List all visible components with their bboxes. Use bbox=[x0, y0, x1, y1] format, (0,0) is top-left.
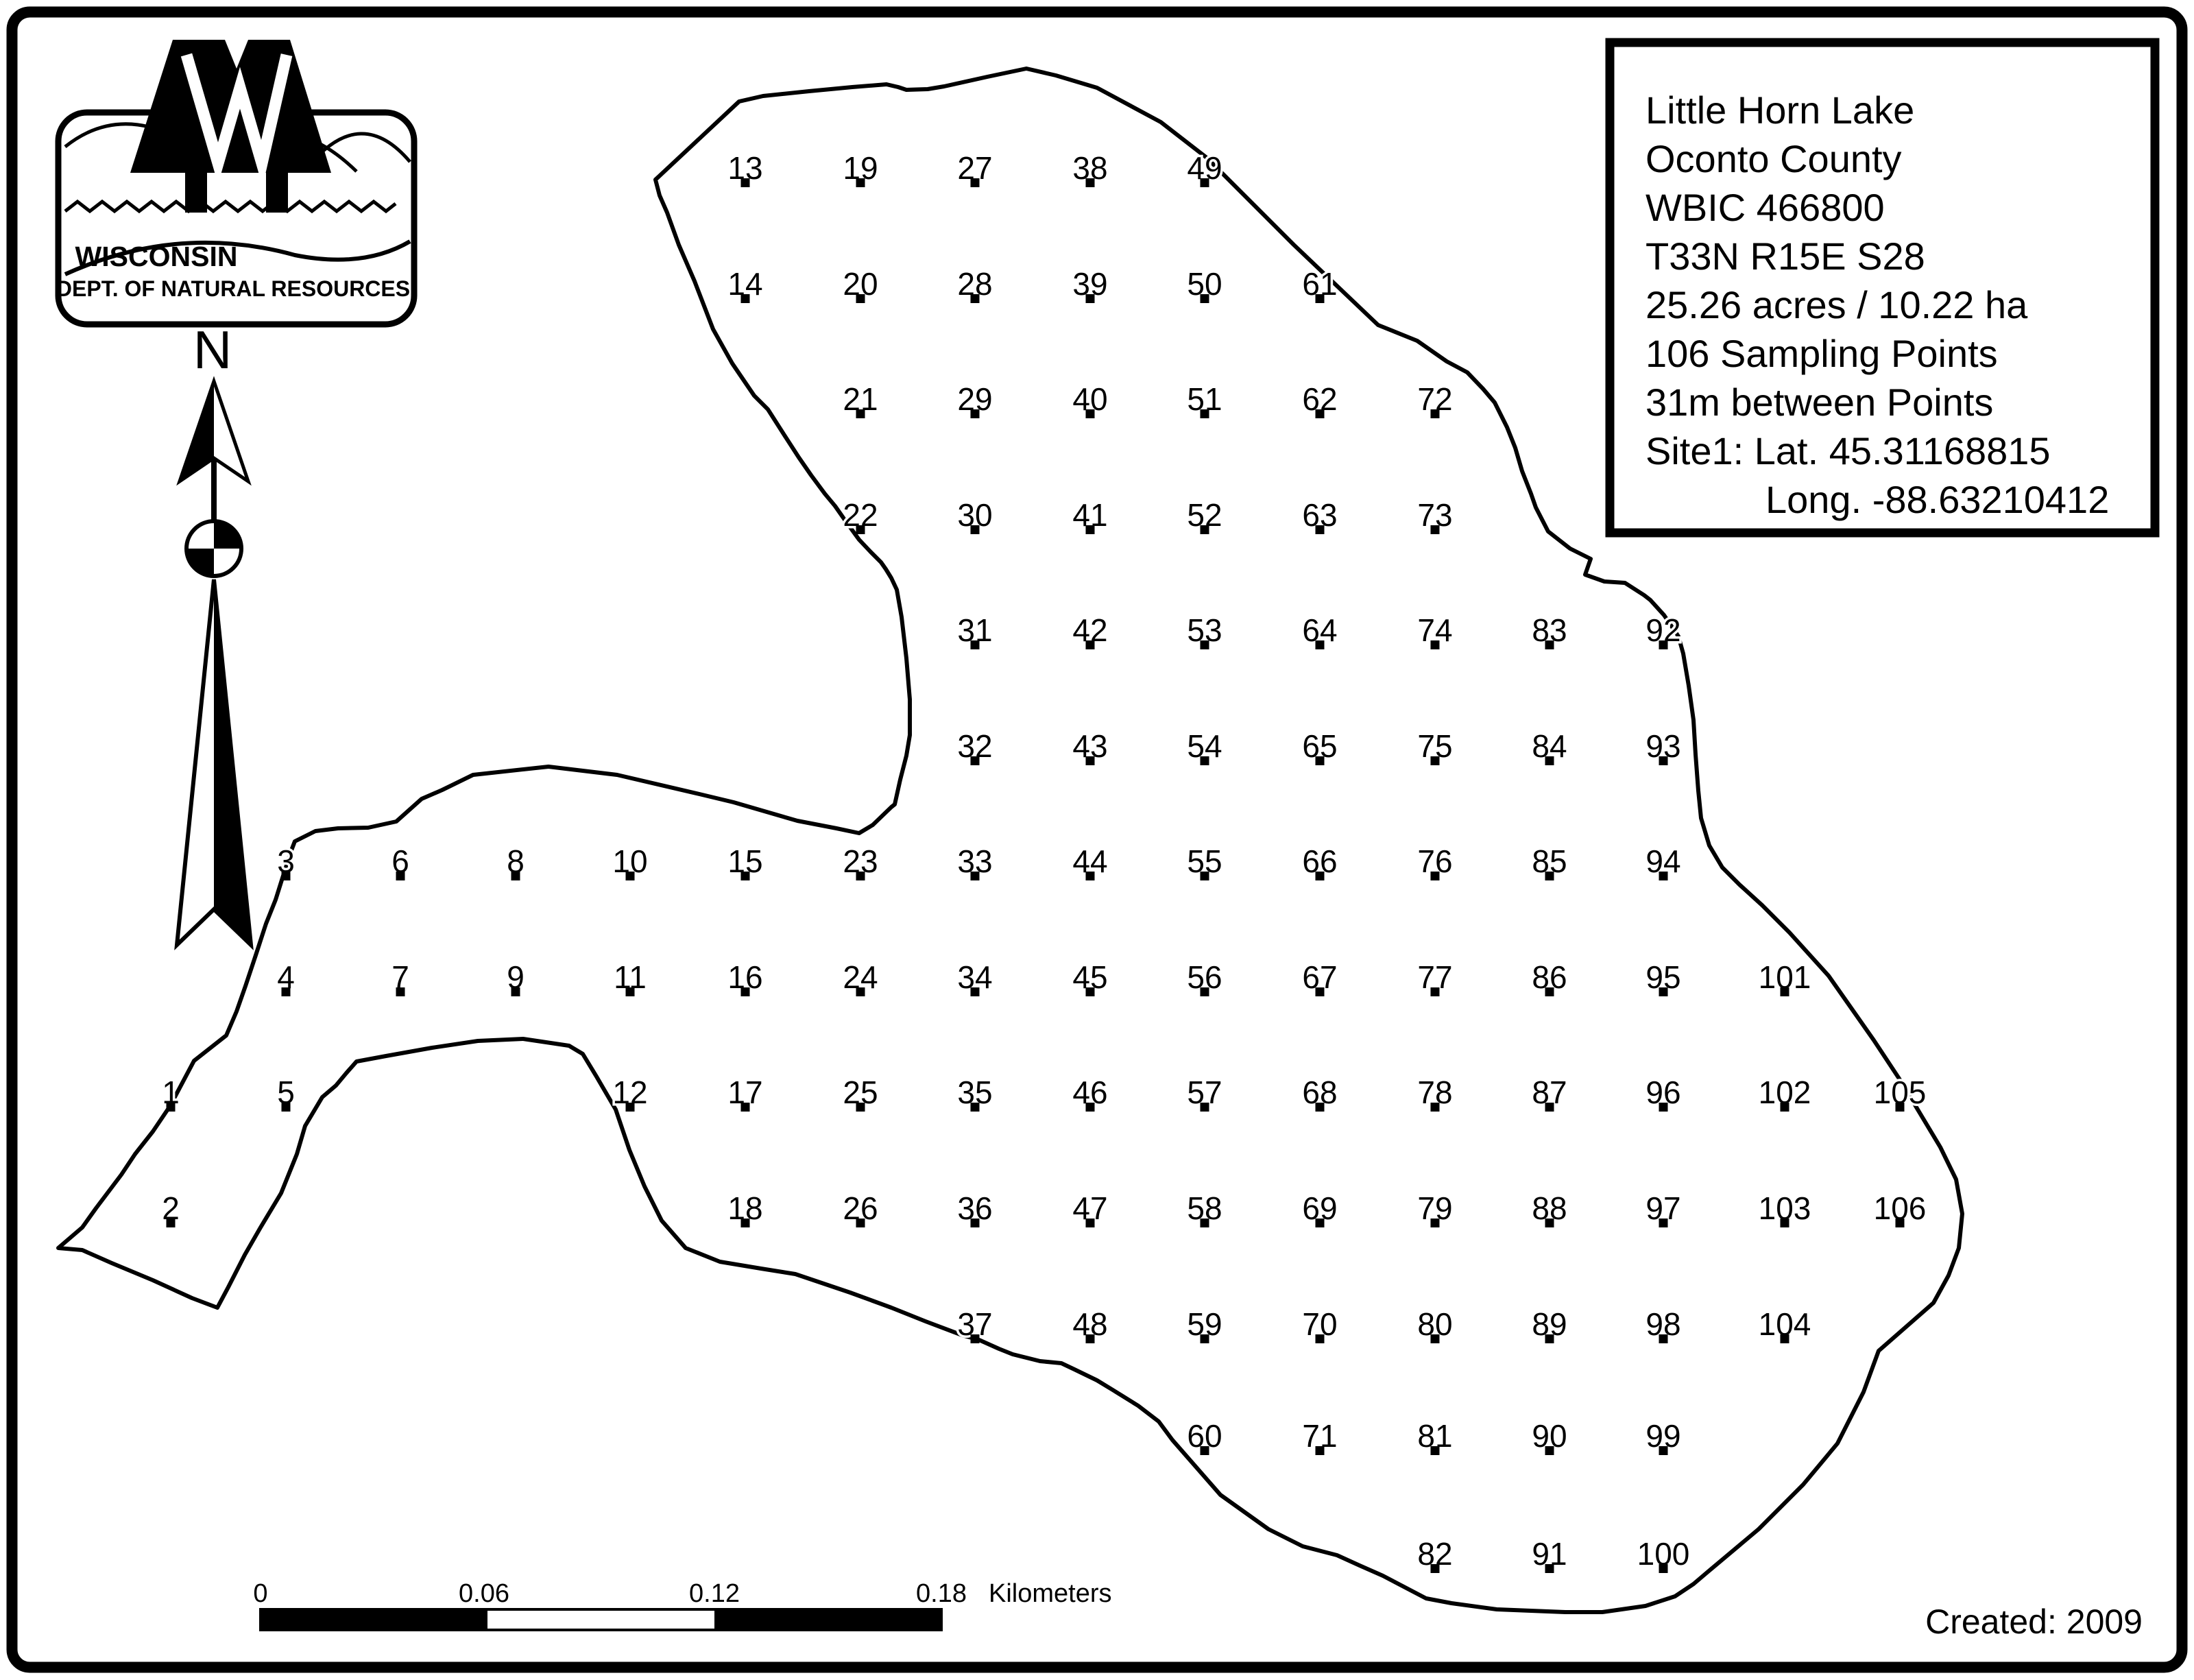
sample-point-dot bbox=[1659, 756, 1668, 765]
sample-point-dot bbox=[856, 1103, 865, 1112]
scale-bar: 00.060.120.18 Kilometers bbox=[253, 1579, 1111, 1630]
sample-point-dot bbox=[741, 1219, 750, 1227]
sample-point-dot bbox=[1086, 640, 1095, 649]
sample-point-dot bbox=[1781, 1219, 1789, 1227]
info-box-line: T33N R15E S28 bbox=[1645, 235, 1925, 278]
sample-point-dot bbox=[626, 872, 635, 880]
sample-point-dot bbox=[971, 525, 980, 534]
north-arrow: N bbox=[177, 320, 251, 945]
sample-point-dot bbox=[971, 409, 980, 418]
sample-point-dot bbox=[1545, 1219, 1554, 1227]
sample-point-dot bbox=[856, 525, 865, 534]
sample-point-dot bbox=[1316, 1219, 1325, 1227]
info-box-line: Oconto County bbox=[1645, 137, 1902, 180]
sample-point-dot bbox=[1545, 640, 1554, 649]
info-box-line: WBIC 466800 bbox=[1645, 186, 1885, 229]
sample-point-dot bbox=[741, 1103, 750, 1112]
sample-point-dot bbox=[1201, 1334, 1209, 1343]
sample-point-dot bbox=[1659, 640, 1668, 649]
info-box-line: 25.26 acres / 10.22 ha bbox=[1645, 283, 2028, 326]
sample-point-dot bbox=[741, 987, 750, 996]
sample-point-dot bbox=[1086, 294, 1095, 303]
sample-point-dot bbox=[1781, 1334, 1789, 1343]
sample-point-dot bbox=[1545, 756, 1554, 765]
sample-point-dot bbox=[1201, 1219, 1209, 1227]
sample-point-dot bbox=[971, 987, 980, 996]
sample-point-dot bbox=[971, 1103, 980, 1112]
sample-point-dot bbox=[741, 178, 750, 187]
sample-point-dot bbox=[1431, 1334, 1440, 1343]
scale-tick-labels: 00.060.120.18 bbox=[253, 1579, 967, 1608]
scale-unit-label: Kilometers bbox=[989, 1579, 1112, 1608]
sample-point-dot bbox=[1431, 525, 1440, 534]
sample-point-dot bbox=[971, 178, 980, 187]
sample-point-dot bbox=[1086, 987, 1095, 996]
sample-point-dot bbox=[1659, 1334, 1668, 1343]
sample-point-dot bbox=[1431, 1564, 1440, 1573]
sample-point-dot bbox=[1659, 1564, 1668, 1573]
info-box-line: 31m between Points bbox=[1645, 381, 1993, 424]
sample-point-dot bbox=[1781, 987, 1789, 996]
sample-point-dot bbox=[626, 987, 635, 996]
sample-point-dot bbox=[1896, 1219, 1905, 1227]
sample-point-dot bbox=[1316, 1446, 1325, 1455]
sample-point-dot bbox=[1086, 756, 1095, 765]
sample-point-dot bbox=[1086, 872, 1095, 880]
scale-bar-segment-3 bbox=[714, 1609, 941, 1630]
sample-point-dot bbox=[1316, 1103, 1325, 1112]
sample-point-dot bbox=[1431, 409, 1440, 418]
map-canvas: 1234567891011121314151617181920212223242… bbox=[0, 0, 2194, 1680]
sample-point-dot bbox=[1431, 640, 1440, 649]
sample-point-dot bbox=[1431, 872, 1440, 880]
scale-tick-label: 0.18 bbox=[916, 1579, 967, 1608]
sample-point-dot bbox=[1431, 987, 1440, 996]
sample-point-dot bbox=[971, 872, 980, 880]
sample-point-dot bbox=[1316, 640, 1325, 649]
sample-point-dot bbox=[1659, 872, 1668, 880]
scale-tick-label: 0.12 bbox=[689, 1579, 740, 1608]
sample-point-dot bbox=[1545, 987, 1554, 996]
sample-point-dot bbox=[1316, 987, 1325, 996]
sample-point-dot bbox=[1086, 409, 1095, 418]
logo-org-line1: WISCONSIN bbox=[75, 241, 238, 272]
sample-point-dot bbox=[856, 1219, 865, 1227]
sample-point-dot bbox=[971, 1219, 980, 1227]
sample-point-dot bbox=[396, 872, 405, 880]
sample-point-dot bbox=[1659, 1103, 1668, 1112]
sample-point-dot bbox=[282, 1103, 291, 1112]
sample-point-dot bbox=[1201, 178, 1209, 187]
dnr-logo: WISCONSIN DEPT. OF NATURAL RESOURCES bbox=[56, 40, 414, 324]
sample-point-dot bbox=[1316, 294, 1325, 303]
info-box-line: Long. -88.63210412 bbox=[1765, 478, 2109, 521]
sample-point-dot bbox=[511, 872, 520, 880]
sample-point-dot bbox=[167, 1219, 176, 1227]
sample-point-dot bbox=[1431, 1103, 1440, 1112]
info-box-line: Site1: Lat. 45.31168815 bbox=[1645, 429, 2051, 472]
sample-point-dot bbox=[1201, 409, 1209, 418]
sample-point-dot bbox=[1659, 1446, 1668, 1455]
hub-quadrant-ne-icon bbox=[214, 521, 241, 549]
sample-point-dot bbox=[1316, 756, 1325, 765]
sample-point-dot bbox=[971, 1334, 980, 1343]
sample-point-dot bbox=[1201, 294, 1209, 303]
scale-tick-label: 0.06 bbox=[459, 1579, 509, 1608]
sample-point-dot bbox=[1201, 1103, 1209, 1112]
sample-point-dot bbox=[1086, 1334, 1095, 1343]
sample-point-dot bbox=[1545, 872, 1554, 880]
scale-tick-label: 0 bbox=[253, 1579, 267, 1608]
sample-point-dot bbox=[511, 987, 520, 996]
sample-point-dot bbox=[741, 872, 750, 880]
sample-point-dot bbox=[1659, 987, 1668, 996]
sample-point-dot bbox=[1086, 1219, 1095, 1227]
north-label: N bbox=[193, 320, 232, 380]
sample-point-dot bbox=[971, 640, 980, 649]
info-box-line: 106 Sampling Points bbox=[1645, 332, 1998, 375]
sample-point-dot bbox=[856, 409, 865, 418]
sample-point-dot bbox=[1316, 409, 1325, 418]
sample-point-dot bbox=[856, 294, 865, 303]
sample-point-dot bbox=[741, 294, 750, 303]
sample-point-dot bbox=[1545, 1334, 1554, 1343]
hub-quadrant-sw-icon bbox=[186, 549, 214, 576]
sample-point-dot bbox=[1781, 1103, 1789, 1112]
sample-point-dot bbox=[1545, 1446, 1554, 1455]
sample-point-dot bbox=[1086, 1103, 1095, 1112]
sample-point-dot bbox=[167, 1103, 176, 1112]
sample-point-dot bbox=[1316, 525, 1325, 534]
scale-bar-segment-1 bbox=[261, 1609, 487, 1630]
sample-point-dot bbox=[282, 872, 291, 880]
sample-point-dot bbox=[1201, 525, 1209, 534]
sample-point-dot bbox=[1545, 1103, 1554, 1112]
sample-point-dot bbox=[1316, 1334, 1325, 1343]
sample-point-dot bbox=[856, 178, 865, 187]
sample-point-dot bbox=[1431, 756, 1440, 765]
logo-org-line2: DEPT. OF NATURAL RESOURCES bbox=[56, 276, 410, 301]
sample-point-dot bbox=[971, 756, 980, 765]
sample-point-dot bbox=[1086, 178, 1095, 187]
sample-point-dot bbox=[1316, 872, 1325, 880]
sample-point-dot bbox=[626, 1103, 635, 1112]
sample-point-dot bbox=[1201, 756, 1209, 765]
sample-point-dot bbox=[1431, 1446, 1440, 1455]
sample-point-dot bbox=[856, 872, 865, 880]
sample-point-dot bbox=[1201, 1446, 1209, 1455]
info-box-line: Little Horn Lake bbox=[1645, 88, 1914, 132]
sample-point-dot bbox=[1659, 1219, 1668, 1227]
sample-point-dot bbox=[1431, 1219, 1440, 1227]
map-page: 1234567891011121314151617181920212223242… bbox=[0, 0, 2194, 1680]
sample-point-dot bbox=[1201, 987, 1209, 996]
sample-point-dot bbox=[396, 987, 405, 996]
sample-point-dot bbox=[1896, 1103, 1905, 1112]
sample-point-dot bbox=[856, 987, 865, 996]
created-label: Created: 2009 bbox=[1925, 1603, 2143, 1641]
sample-point-dot bbox=[1086, 525, 1095, 534]
info-box: Little Horn LakeOconto CountyWBIC 466800… bbox=[1610, 43, 2155, 533]
sample-point-dot bbox=[282, 987, 291, 996]
sample-point-dot bbox=[971, 294, 980, 303]
sample-point-dot bbox=[1545, 1564, 1554, 1573]
sample-point-dot bbox=[1201, 640, 1209, 649]
sample-point-dot bbox=[1201, 872, 1209, 880]
